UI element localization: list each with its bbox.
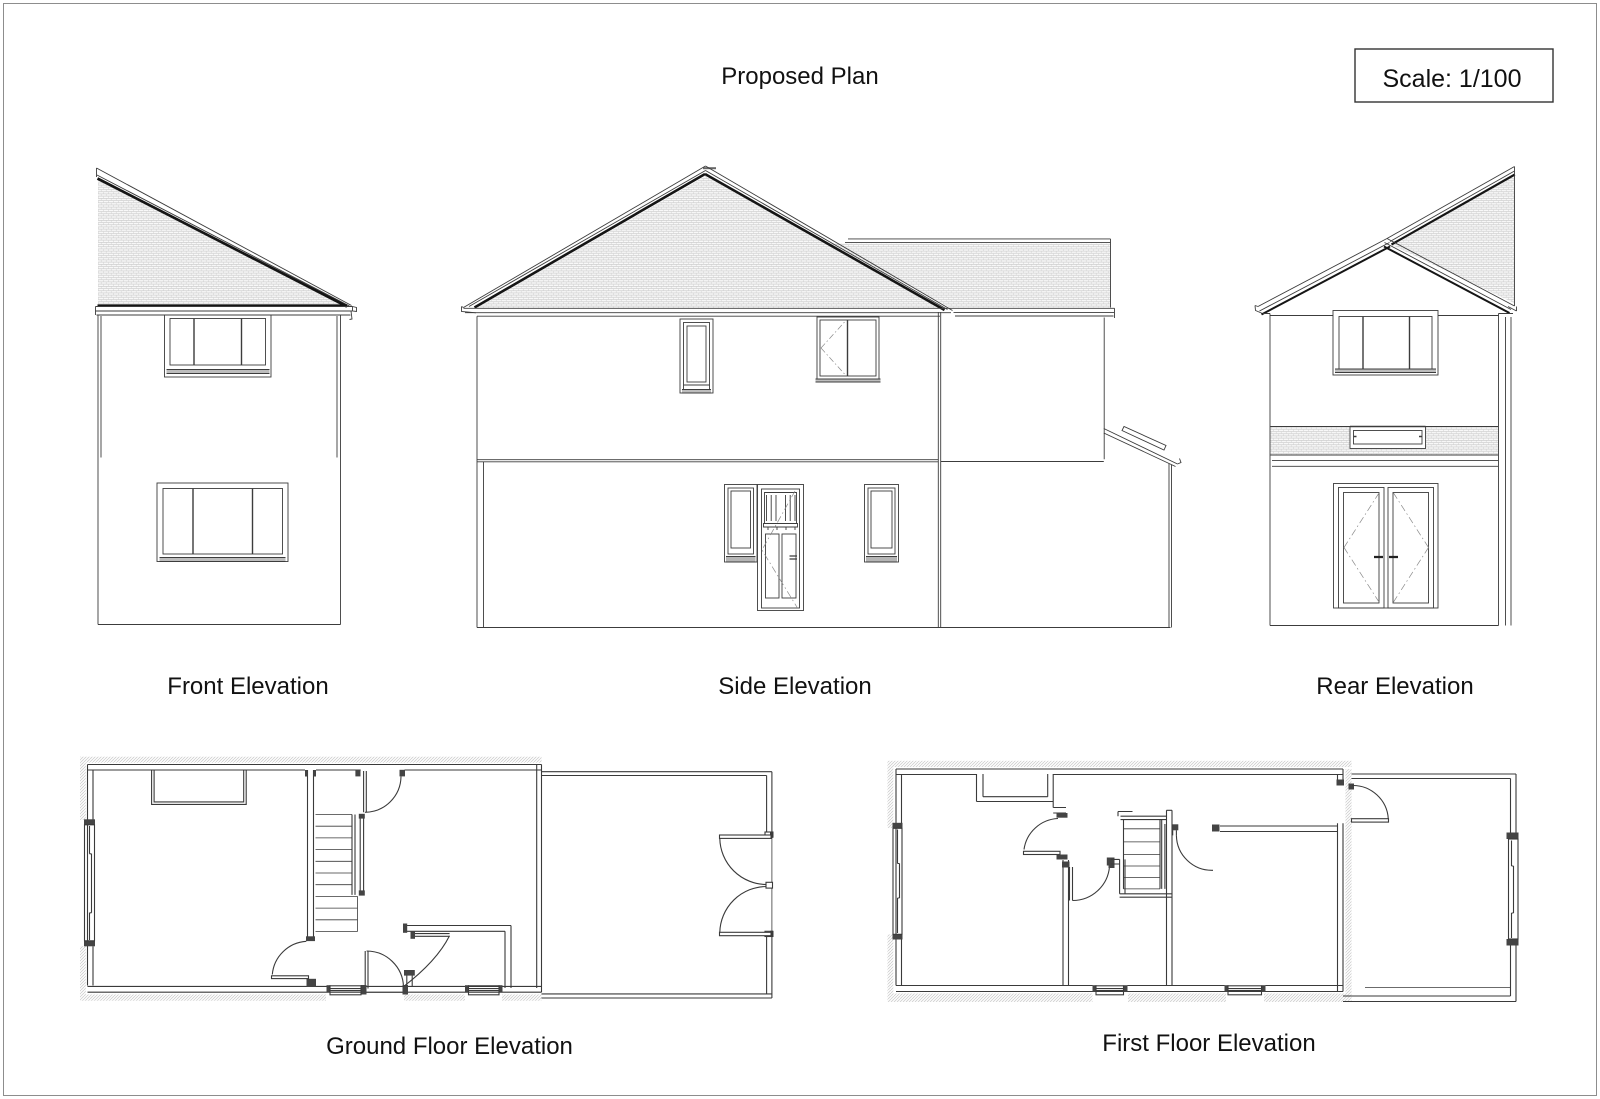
svg-text:Rear Elevation: Rear Elevation — [1316, 673, 1473, 700]
svg-text:Front Elevation: Front Elevation — [167, 673, 328, 700]
svg-text:Side Elevation: Side Elevation — [718, 673, 871, 700]
svg-text:Scale: 1/100: Scale: 1/100 — [1383, 65, 1522, 93]
svg-text:Proposed Plan: Proposed Plan — [721, 63, 878, 90]
svg-text:Ground Floor Elevation: Ground Floor Elevation — [326, 1033, 573, 1060]
svg-text:First Floor Elevation: First Floor Elevation — [1102, 1030, 1315, 1057]
